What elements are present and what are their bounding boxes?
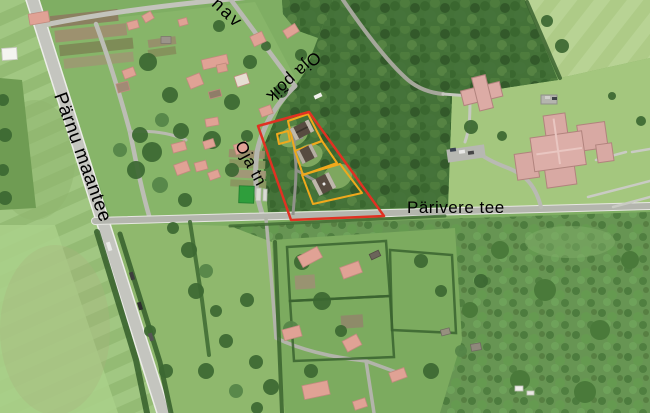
tree (435, 285, 447, 297)
street-label-parivere-tee: Pärivere tee (407, 199, 505, 216)
tree (590, 320, 610, 340)
tree (199, 264, 213, 278)
greenhouse (256, 188, 261, 201)
tree (636, 116, 646, 126)
tree (249, 355, 263, 369)
tree (113, 143, 127, 157)
tree (127, 161, 145, 179)
tree (541, 15, 553, 27)
tree (229, 384, 243, 398)
tree (225, 163, 239, 177)
shed (470, 343, 481, 352)
garden-plot (295, 274, 316, 289)
field-patch (0, 245, 110, 413)
tree (464, 120, 478, 134)
white-cabin (515, 386, 523, 391)
tree (142, 142, 162, 162)
house (205, 117, 219, 127)
tree (210, 305, 222, 317)
scrub-clearing (525, 226, 615, 258)
tree (534, 279, 556, 301)
tree (155, 113, 169, 127)
tree (152, 177, 168, 193)
tree (491, 241, 509, 259)
green-roof-building (239, 186, 255, 204)
tree (219, 334, 233, 348)
tree (423, 363, 439, 379)
tree (414, 254, 428, 268)
tree (159, 364, 173, 378)
house-wing (216, 63, 228, 73)
tree (181, 242, 197, 258)
tree (455, 345, 467, 357)
shed (161, 37, 171, 44)
tree (132, 127, 148, 143)
tree (555, 39, 569, 53)
tree (224, 94, 240, 110)
tree (178, 193, 192, 207)
tree (621, 251, 639, 269)
tree (335, 325, 347, 337)
white-cabin (527, 391, 534, 395)
tree (608, 92, 616, 100)
tree (462, 302, 478, 318)
tree (574, 381, 596, 403)
tree (162, 87, 178, 103)
tree (167, 222, 179, 234)
tree (474, 274, 488, 288)
tree (139, 53, 157, 71)
tree (243, 55, 257, 69)
tree (313, 292, 331, 310)
tree (173, 123, 189, 139)
tree (497, 131, 507, 141)
tree (198, 363, 214, 379)
tree (263, 379, 279, 395)
tree (240, 293, 254, 307)
white-building (2, 47, 18, 60)
tree (188, 283, 204, 299)
map-canvas[interactable]: nav Oja põik Oja tn Pärivere tee Pärnu m… (0, 0, 650, 413)
tree (304, 364, 318, 378)
greenhouse (263, 189, 267, 201)
